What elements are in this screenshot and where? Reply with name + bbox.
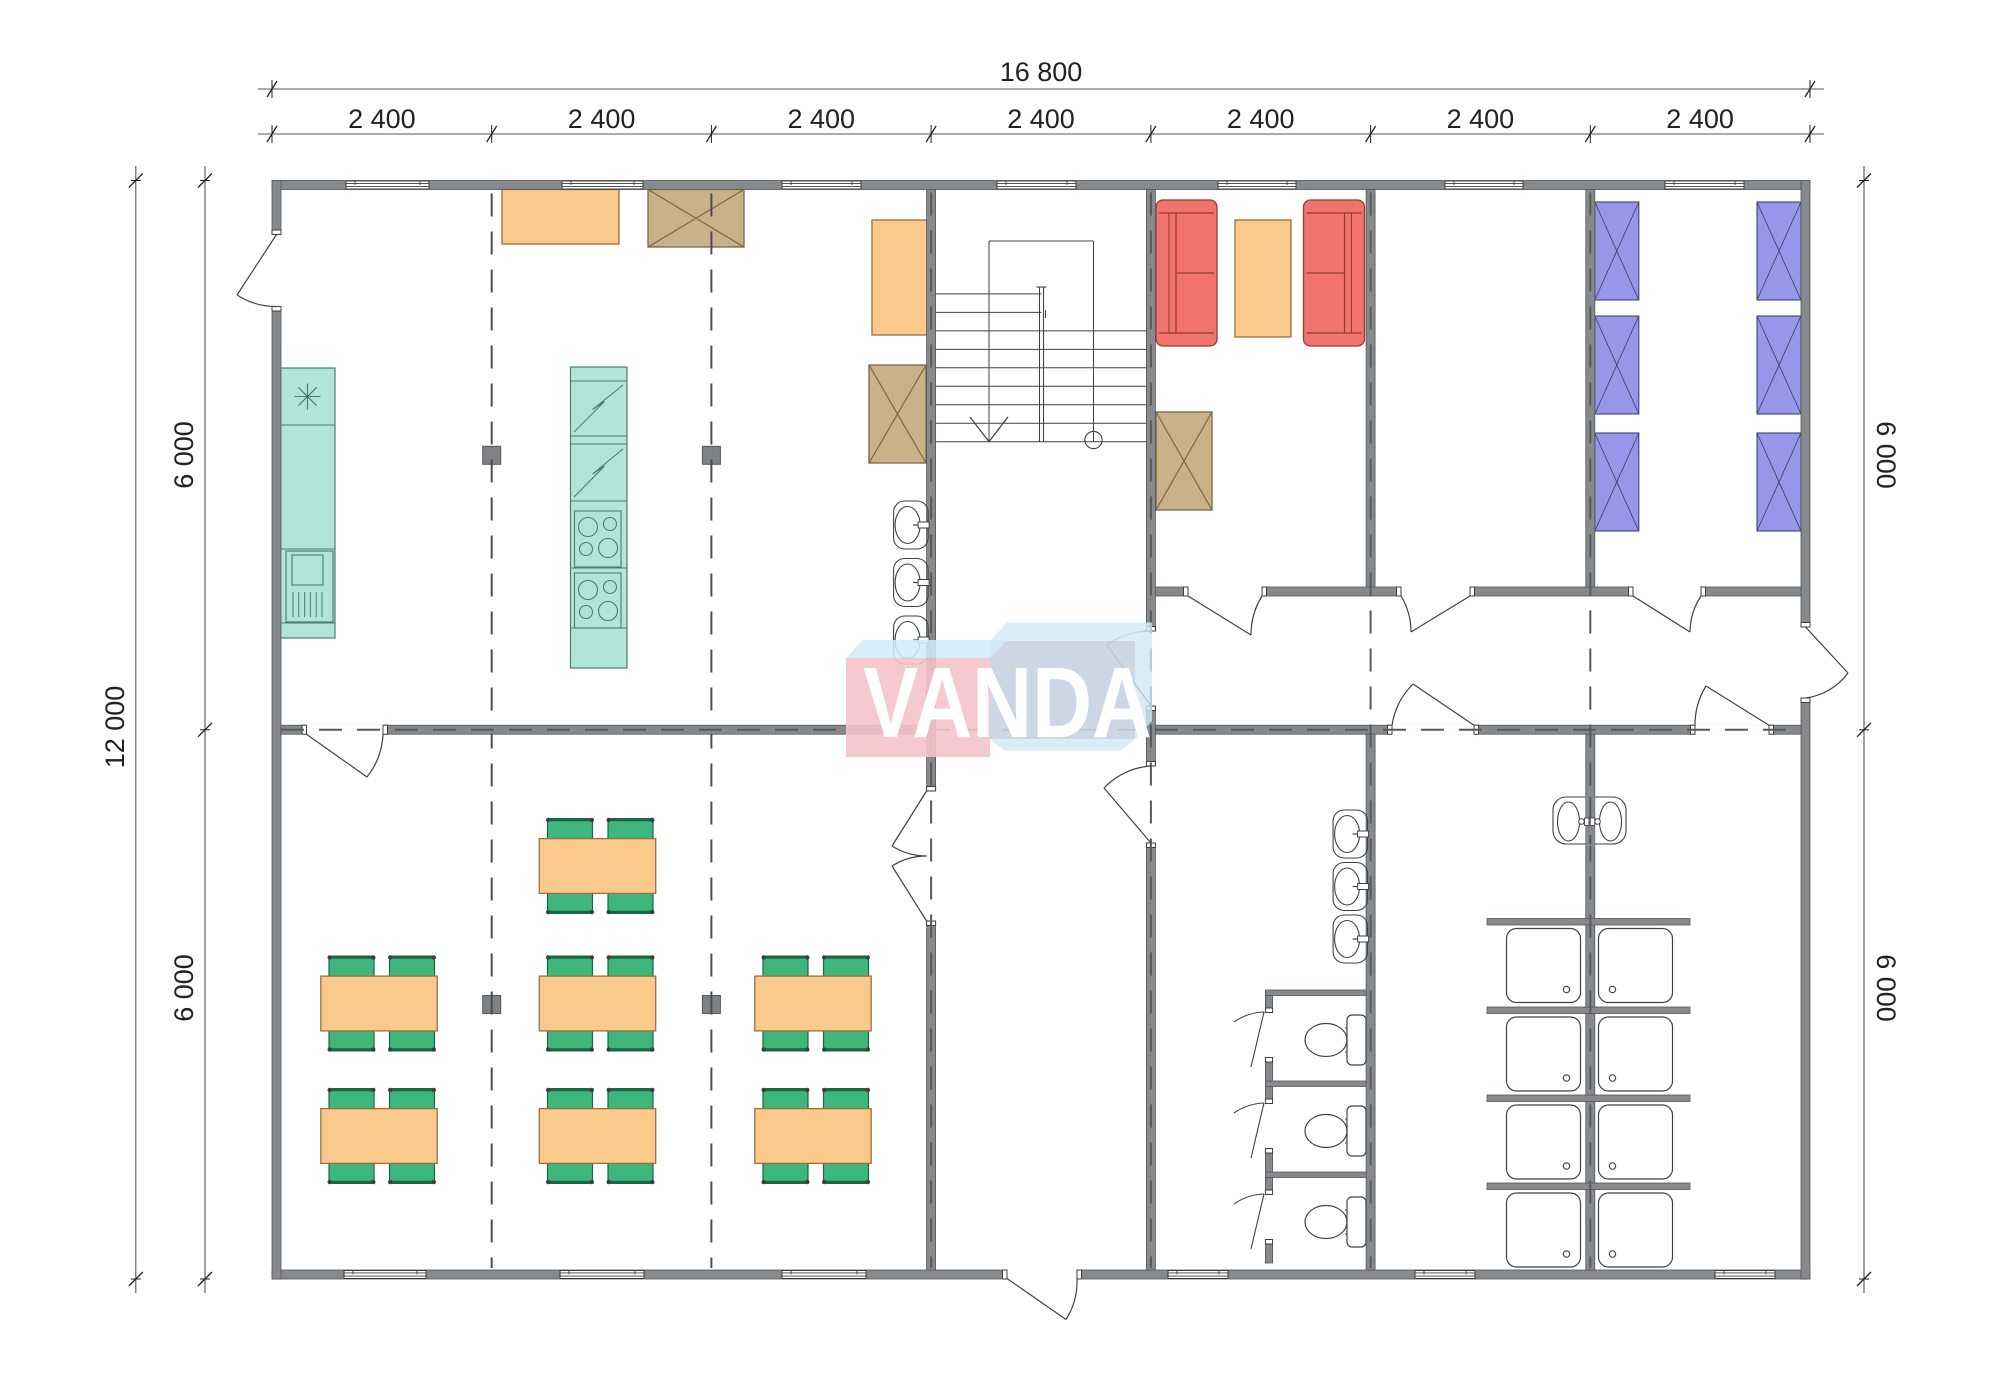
svg-text:6 000: 6 000 (169, 954, 199, 1022)
svg-text:2 400: 2 400 (1227, 104, 1295, 134)
svg-text:2 400: 2 400 (1666, 104, 1734, 134)
svg-text:VANDA: VANDA (863, 647, 1152, 759)
svg-text:2 400: 2 400 (1007, 104, 1075, 134)
svg-text:6 000: 6 000 (1871, 421, 1901, 489)
svg-text:2 400: 2 400 (1447, 104, 1515, 134)
svg-text:12 000: 12 000 (100, 686, 130, 769)
svg-text:6 000: 6 000 (169, 421, 199, 489)
svg-text:2 400: 2 400 (788, 104, 856, 134)
svg-text:2 400: 2 400 (348, 104, 416, 134)
svg-text:6 000: 6 000 (1871, 954, 1901, 1022)
svg-text:2 400: 2 400 (568, 104, 636, 134)
svg-text:16 800: 16 800 (1000, 57, 1083, 87)
